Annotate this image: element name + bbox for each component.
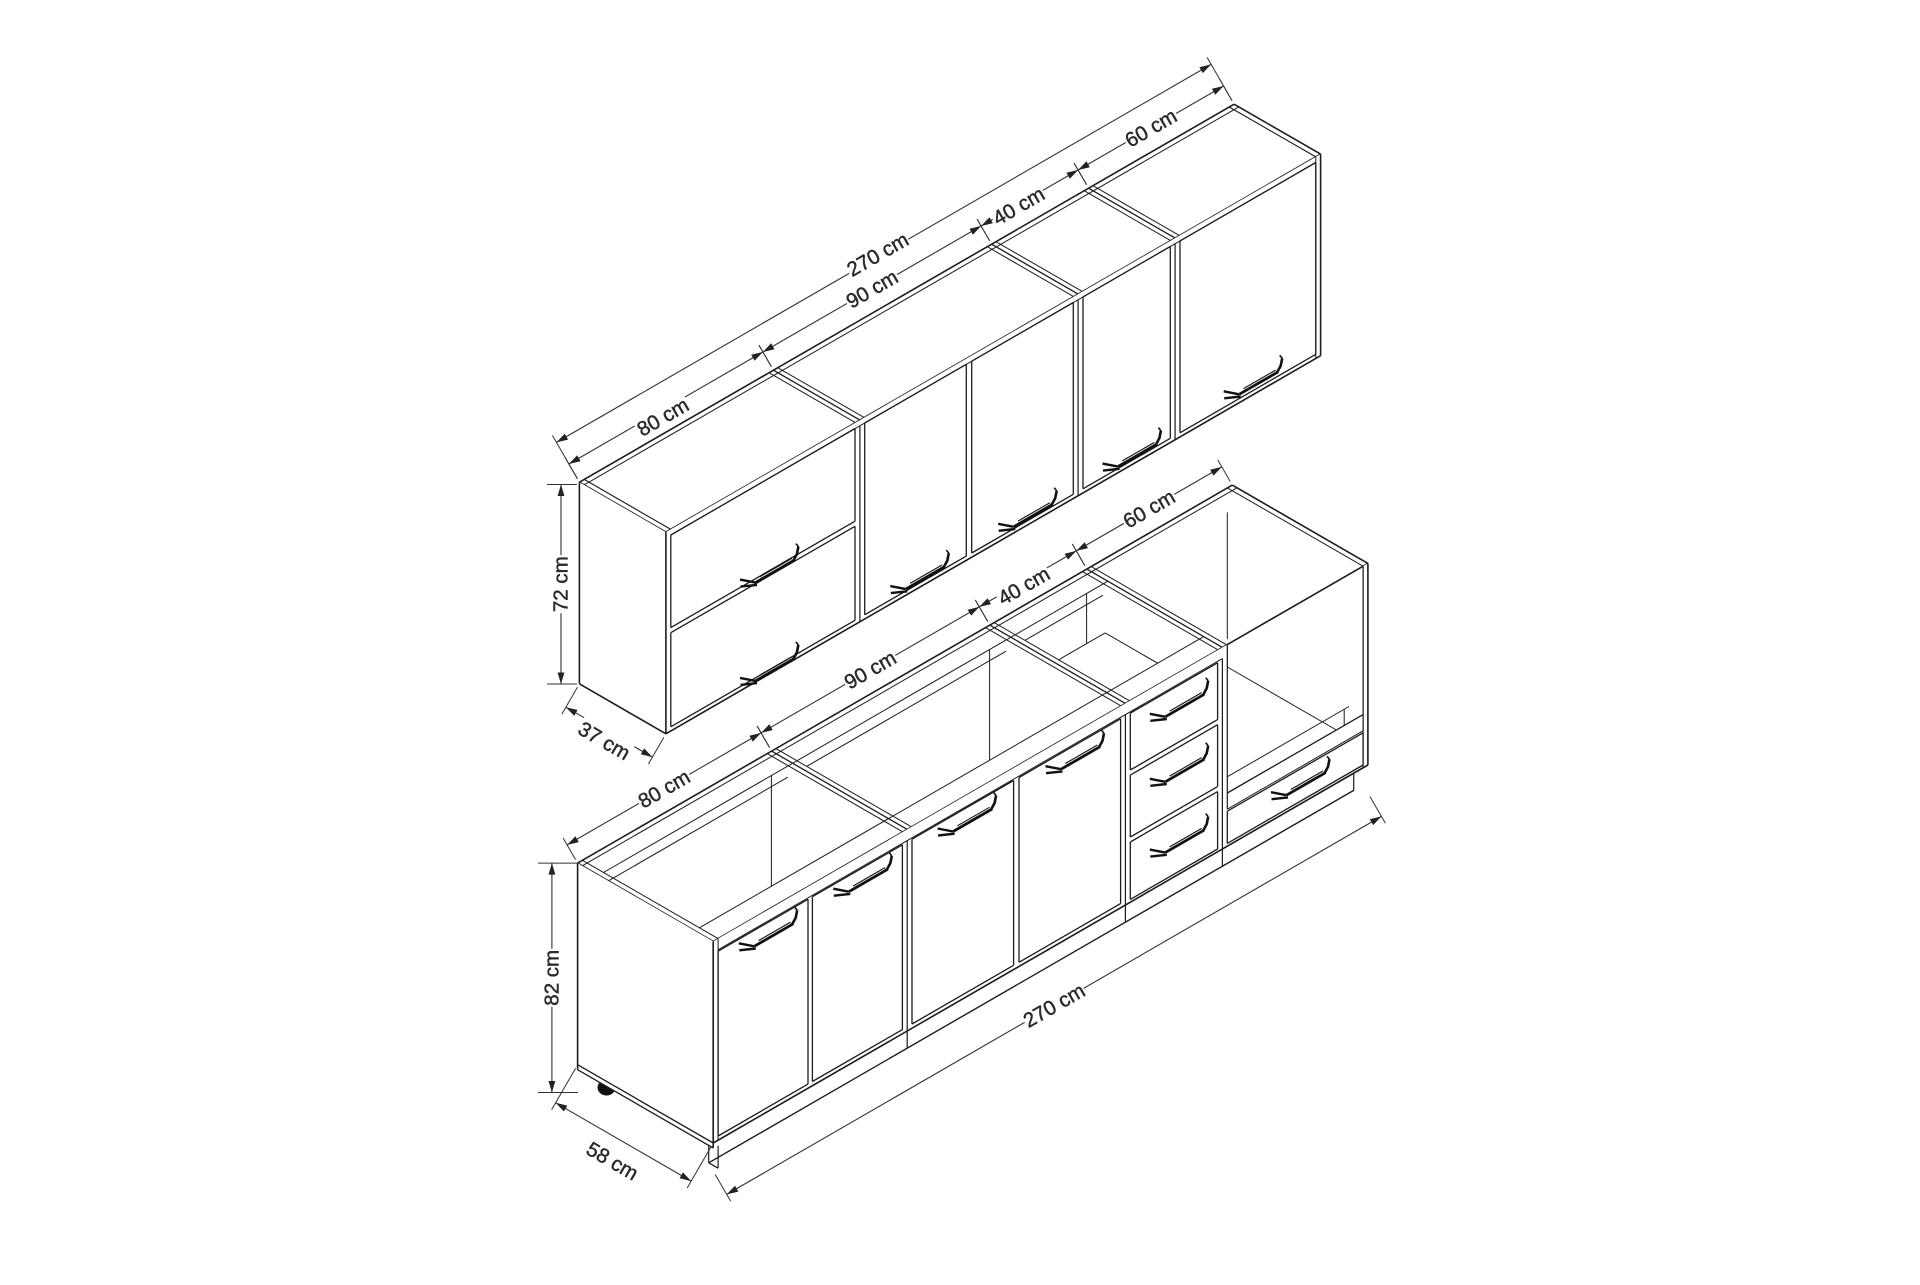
svg-text:72 cm: 72 cm	[550, 556, 573, 612]
svg-text:82 cm: 82 cm	[540, 950, 563, 1006]
